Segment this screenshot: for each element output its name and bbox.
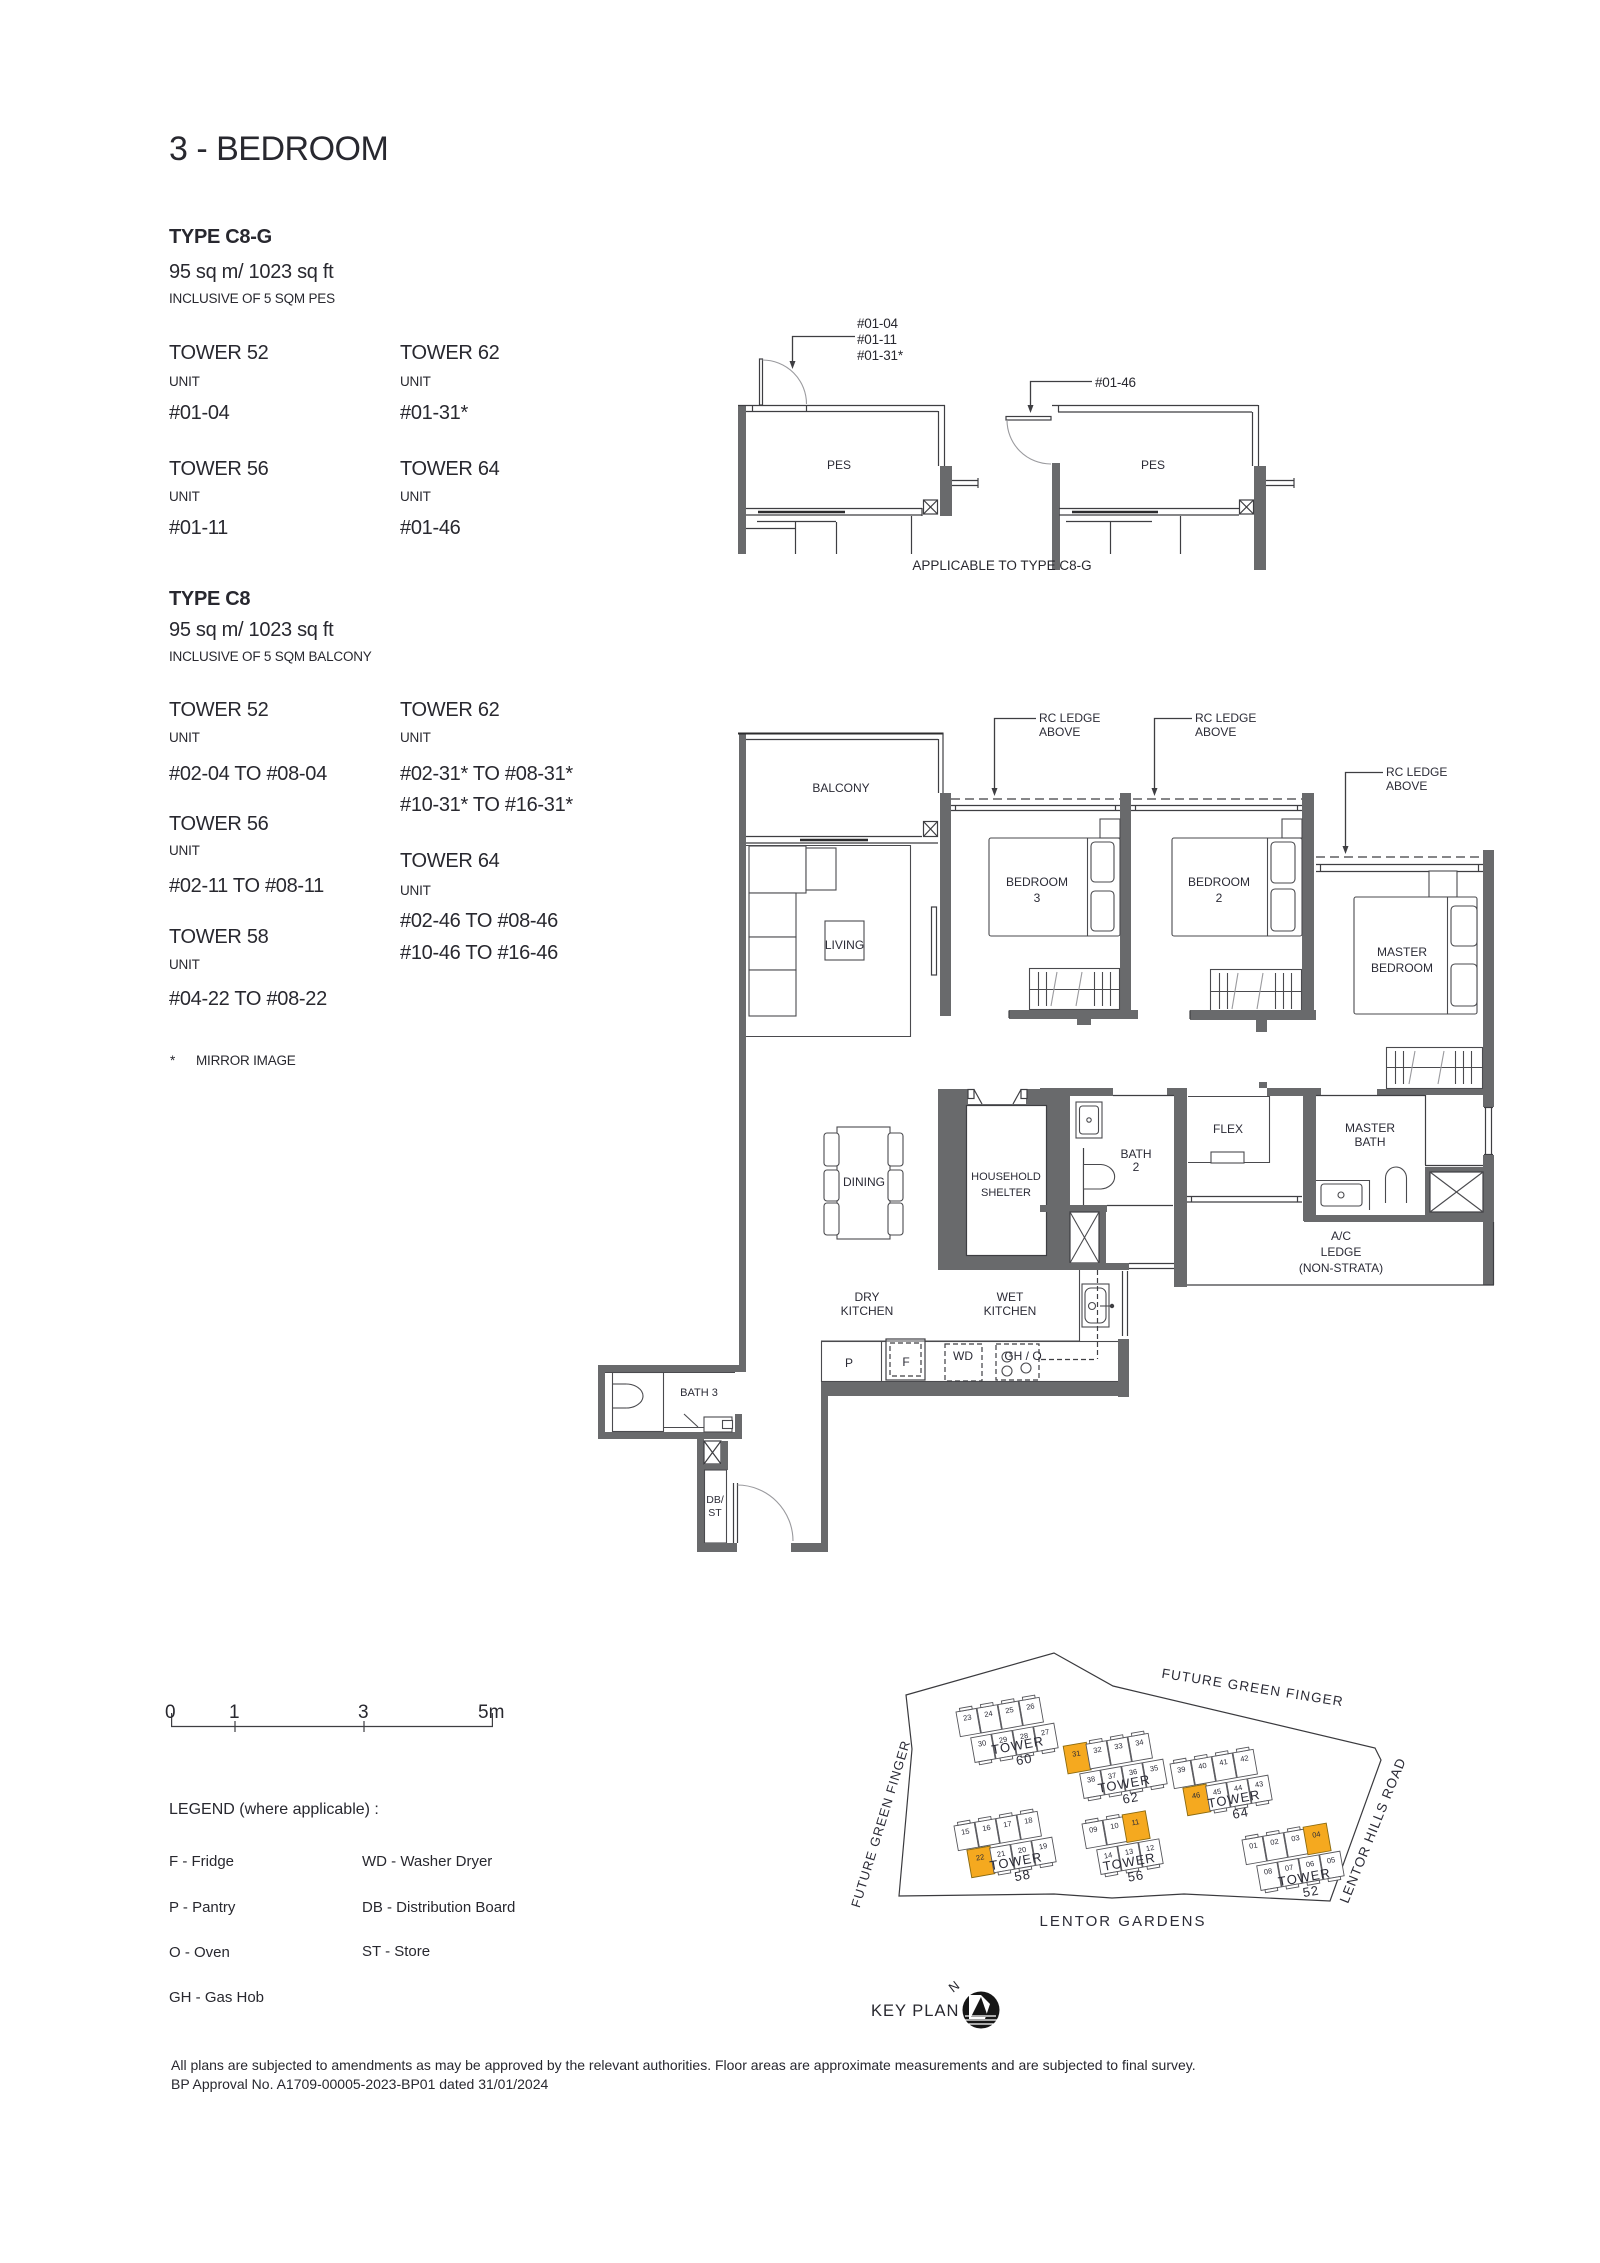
svg-text:UNIT: UNIT	[400, 374, 431, 389]
svg-text:#02-11 TO #08-11: #02-11 TO #08-11	[169, 875, 324, 897]
svg-text:MASTER: MASTER	[1345, 1121, 1395, 1135]
svg-text:LEGEND (where applicable) :: LEGEND (where applicable) :	[169, 1801, 379, 1818]
svg-text:24: 24	[984, 1709, 994, 1719]
svg-text:08: 08	[1263, 1866, 1273, 1876]
svg-text:#01-11: #01-11	[857, 332, 897, 347]
svg-text:64: 64	[1231, 1804, 1250, 1822]
svg-text:03: 03	[1291, 1833, 1301, 1843]
svg-text:09: 09	[1088, 1824, 1098, 1834]
svg-text:3: 3	[1034, 891, 1041, 905]
svg-text:MASTER: MASTER	[1377, 945, 1427, 959]
svg-text:3: 3	[358, 1702, 369, 1723]
svg-text:41: 41	[1219, 1757, 1229, 1767]
svg-text:MIRROR IMAGE: MIRROR IMAGE	[196, 1053, 296, 1068]
svg-text:FUTURE GREEN FINGER: FUTURE GREEN FINGER	[1161, 1666, 1345, 1710]
svg-text:F - Fridge: F - Fridge	[169, 1853, 234, 1870]
svg-text:2: 2	[1216, 891, 1223, 905]
svg-text:01: 01	[1248, 1840, 1258, 1850]
svg-text:BATH: BATH	[1354, 1135, 1385, 1149]
svg-text:ST - Store: ST - Store	[362, 1943, 430, 1960]
svg-text:KITCHEN: KITCHEN	[984, 1304, 1037, 1318]
svg-text:#02-46 TO #08-46: #02-46 TO #08-46	[400, 910, 558, 932]
svg-text:#01-46: #01-46	[1095, 375, 1136, 390]
svg-text:INCLUSIVE OF 5 SQM PES: INCLUSIVE OF 5 SQM PES	[169, 291, 335, 306]
svg-text:A/C: A/C	[1331, 1229, 1351, 1243]
svg-text:TOWER 62: TOWER 62	[400, 699, 500, 721]
svg-text:ST: ST	[708, 1507, 722, 1519]
svg-text:35: 35	[1149, 1763, 1159, 1773]
svg-text:DB/: DB/	[706, 1494, 724, 1506]
svg-text:40: 40	[1198, 1761, 1208, 1771]
svg-text:LEDGE: LEDGE	[1321, 1245, 1362, 1259]
svg-text:32: 32	[1093, 1745, 1103, 1755]
svg-text:UNIT: UNIT	[169, 730, 200, 745]
svg-text:0: 0	[165, 1702, 176, 1723]
svg-text:58: 58	[1013, 1867, 1032, 1885]
svg-text:23: 23	[962, 1712, 972, 1722]
svg-text:All plans are subjected to ame: All plans are subjected to amendments as…	[171, 2057, 1196, 2073]
svg-text:02: 02	[1270, 1837, 1280, 1847]
svg-text:95 sq m/ 1023 sq ft: 95 sq m/ 1023 sq ft	[169, 261, 334, 283]
svg-text:16: 16	[982, 1823, 992, 1833]
svg-text:TYPE C8: TYPE C8	[169, 588, 250, 610]
svg-text:UNIT: UNIT	[169, 374, 200, 389]
svg-text:30: 30	[977, 1738, 987, 1748]
svg-text:BEDROOM: BEDROOM	[1006, 875, 1068, 889]
svg-text:52: 52	[1302, 1882, 1321, 1900]
svg-text:INCLUSIVE OF 5 SQM BALCONY: INCLUSIVE OF 5 SQM BALCONY	[169, 649, 372, 664]
svg-text:5m: 5m	[478, 1702, 504, 1723]
svg-text:TOWER 64: TOWER 64	[400, 458, 500, 480]
svg-text:DINING: DINING	[843, 1175, 885, 1189]
svg-text:#04-22 TO #08-22: #04-22 TO #08-22	[169, 988, 327, 1010]
svg-text:2: 2	[1133, 1160, 1140, 1174]
svg-text:#01-31*: #01-31*	[857, 348, 904, 363]
svg-text:LENTOR GARDENS: LENTOR GARDENS	[1040, 1913, 1207, 1930]
svg-text:3 - BEDROOM: 3 - BEDROOM	[169, 130, 388, 168]
svg-text:SHELTER: SHELTER	[981, 1187, 1031, 1199]
svg-text:BEDROOM: BEDROOM	[1371, 961, 1433, 975]
svg-text:31: 31	[1071, 1748, 1081, 1758]
svg-text:1: 1	[229, 1702, 240, 1723]
svg-text:56: 56	[1126, 1867, 1145, 1885]
svg-text:#10-31* TO #16-31*: #10-31* TO #16-31*	[400, 794, 573, 816]
svg-text:PES: PES	[1141, 458, 1165, 472]
svg-text:TOWER 52: TOWER 52	[169, 342, 269, 364]
svg-text:#01-04: #01-04	[857, 316, 899, 331]
svg-text:RC LEDGE: RC LEDGE	[1195, 711, 1256, 725]
svg-text:APPLICABLE TO TYPE C8-G: APPLICABLE TO TYPE C8-G	[912, 558, 1091, 573]
svg-text:05: 05	[1326, 1855, 1336, 1865]
svg-text:TOWER 64: TOWER 64	[400, 850, 500, 872]
svg-text:17: 17	[1003, 1819, 1013, 1829]
svg-text:TOWER 58: TOWER 58	[169, 926, 269, 948]
svg-text:DB - Distribution Board: DB - Distribution Board	[362, 1899, 515, 1916]
svg-text:(NON-STRATA): (NON-STRATA)	[1299, 1261, 1383, 1275]
svg-text:04: 04	[1311, 1829, 1321, 1839]
svg-text:TOWER 52: TOWER 52	[169, 699, 269, 721]
svg-text:22: 22	[975, 1852, 985, 1862]
svg-text:34: 34	[1134, 1737, 1144, 1747]
svg-text:ABOVE: ABOVE	[1039, 725, 1080, 739]
svg-text:HOUSEHOLD: HOUSEHOLD	[971, 1171, 1041, 1183]
svg-text:TOWER 56: TOWER 56	[169, 813, 269, 835]
svg-text:#01-31*: #01-31*	[400, 402, 468, 424]
svg-text:*: *	[170, 1053, 176, 1068]
svg-text:RC LEDGE: RC LEDGE	[1386, 765, 1447, 779]
svg-text:ABOVE: ABOVE	[1195, 725, 1236, 739]
svg-text:BP Approval No. A1709-00005-20: BP Approval No. A1709-00005-2023-BP01 da…	[171, 2076, 548, 2092]
svg-text:#01-04: #01-04	[169, 402, 230, 424]
svg-text:F: F	[902, 1355, 909, 1369]
svg-text:33: 33	[1114, 1741, 1124, 1751]
svg-text:LIVING: LIVING	[825, 938, 864, 952]
svg-text:BATH: BATH	[1120, 1147, 1151, 1161]
svg-text:BATH 3: BATH 3	[680, 1387, 718, 1399]
svg-text:11: 11	[1131, 1817, 1140, 1827]
svg-text:WD: WD	[953, 1349, 973, 1363]
svg-text:RC LEDGE: RC LEDGE	[1039, 711, 1100, 725]
svg-text:TOWER 62: TOWER 62	[400, 342, 500, 364]
svg-text:BEDROOM: BEDROOM	[1188, 875, 1250, 889]
svg-text:KITCHEN: KITCHEN	[841, 1304, 894, 1318]
svg-text:UNIT: UNIT	[400, 489, 431, 504]
svg-text:KEY PLAN: KEY PLAN	[871, 2002, 959, 2020]
svg-text:#01-46: #01-46	[400, 517, 461, 539]
svg-text:#02-31* TO #08-31*: #02-31* TO #08-31*	[400, 763, 573, 785]
svg-text:42: 42	[1239, 1753, 1249, 1763]
svg-text:UNIT: UNIT	[400, 883, 431, 898]
svg-text:TYPE C8-G: TYPE C8-G	[169, 226, 272, 248]
svg-text:UNIT: UNIT	[400, 730, 431, 745]
svg-text:BALCONY: BALCONY	[812, 781, 869, 795]
svg-text:UNIT: UNIT	[169, 957, 200, 972]
svg-text:26: 26	[1025, 1701, 1035, 1711]
svg-text:FUTURE GREEN FINGER: FUTURE GREEN FINGER	[848, 1738, 913, 1909]
svg-text:WD - Washer Dryer: WD - Washer Dryer	[362, 1853, 492, 1870]
svg-text:#02-04 TO #08-04: #02-04 TO #08-04	[169, 763, 327, 785]
svg-text:#01-11: #01-11	[169, 517, 228, 539]
svg-text:18: 18	[1023, 1815, 1033, 1825]
svg-text:DRY: DRY	[854, 1290, 879, 1304]
svg-text:GH - Gas Hob: GH - Gas Hob	[169, 1989, 264, 2006]
svg-text:LENTOR HILLS ROAD: LENTOR HILLS ROAD	[1337, 1755, 1409, 1905]
svg-text:O - Oven: O - Oven	[169, 1944, 230, 1961]
svg-text:10: 10	[1110, 1821, 1120, 1831]
svg-text:ABOVE: ABOVE	[1386, 779, 1427, 793]
svg-text:62: 62	[1121, 1789, 1140, 1807]
svg-text:TOWER 56: TOWER 56	[169, 458, 269, 480]
svg-text:UNIT: UNIT	[169, 843, 200, 858]
svg-text:38: 38	[1086, 1774, 1096, 1784]
svg-text:FLEX: FLEX	[1213, 1122, 1243, 1136]
svg-text:P - Pantry: P - Pantry	[169, 1899, 236, 1916]
svg-text:N: N	[946, 1978, 963, 1996]
svg-text:39: 39	[1176, 1764, 1186, 1774]
svg-text:#10-46 TO #16-46: #10-46 TO #16-46	[400, 942, 558, 964]
svg-text:PES: PES	[827, 458, 851, 472]
svg-text:60: 60	[1015, 1751, 1034, 1769]
svg-text:25: 25	[1005, 1705, 1015, 1715]
svg-text:WET: WET	[997, 1290, 1024, 1304]
svg-text:P: P	[845, 1356, 853, 1370]
svg-text:15: 15	[960, 1826, 970, 1836]
svg-text:95 sq m/ 1023 sq ft: 95 sq m/ 1023 sq ft	[169, 619, 334, 641]
svg-text:UNIT: UNIT	[169, 489, 200, 504]
svg-text:46: 46	[1191, 1790, 1201, 1800]
